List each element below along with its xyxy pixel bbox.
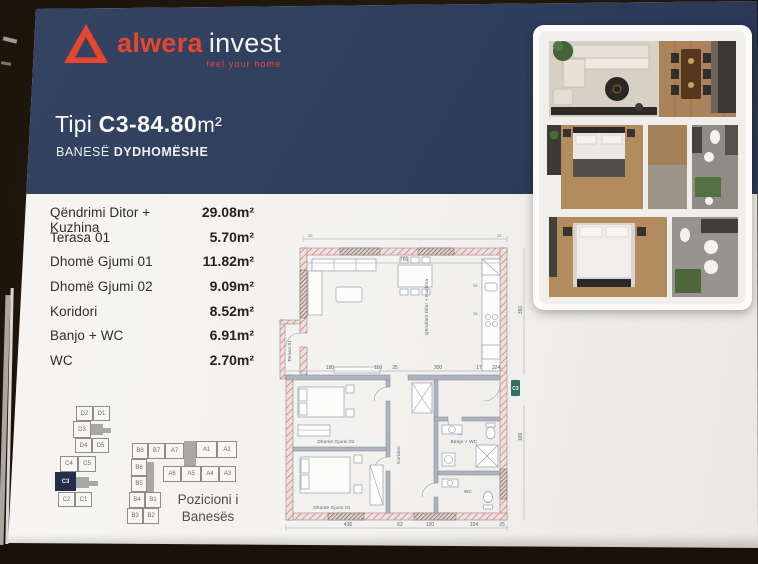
- bath-mat-green: [695, 177, 721, 197]
- position-caption-line1: Pozicioni i: [168, 492, 248, 509]
- wardrobe: [298, 425, 330, 436]
- title-prefix: Tipi: [55, 111, 92, 137]
- elevator-shaft: [76, 477, 89, 488]
- wc-toilet-tank: [484, 505, 493, 509]
- unit-cell: C5: [78, 456, 96, 472]
- dim-corner-right: 25: [497, 233, 502, 238]
- room-area: 11.82m²: [180, 253, 254, 269]
- toilet-3d: [710, 130, 720, 144]
- room-label: Koridori: [50, 304, 180, 319]
- room-row: Qëndrimi Ditor + Kuzhina29.08m²: [50, 204, 254, 229]
- nightstand: [354, 485, 362, 493]
- sink2-3d: [704, 240, 718, 254]
- dim-mid: 180: [326, 365, 335, 371]
- room-row: Banjo + WC6.91m²: [50, 327, 254, 352]
- elevator-shaft: [89, 481, 98, 486]
- room-row: WC2.70m²: [50, 352, 254, 377]
- dim-mid: 324: [492, 365, 501, 371]
- unit-cell: B1: [145, 492, 161, 508]
- unit-cell: D1: [93, 406, 110, 421]
- plan-label-bedroom1: Dhomë Gjumi 01: [313, 505, 351, 510]
- door-entrance: [484, 385, 500, 401]
- unit-cell: B4: [129, 492, 145, 508]
- wall-banjo-top: [434, 417, 448, 421]
- plan-label-corridor: Koridori: [396, 446, 401, 463]
- elevator-shaft: [91, 424, 103, 435]
- washing-machine: [442, 453, 455, 466]
- dim-kitchen: 25: [473, 311, 478, 316]
- title-unit: m²: [197, 114, 222, 137]
- wall-terrace-left: [280, 320, 285, 379]
- chair: [400, 289, 408, 295]
- unit-cell: B5: [131, 476, 147, 492]
- door-bedroom2: [374, 387, 388, 401]
- nightstand: [346, 385, 354, 393]
- page-stack-edge: [3, 36, 18, 43]
- position-caption: Pozicioni i Banesës: [168, 492, 248, 526]
- unit-cell: A5: [181, 466, 201, 482]
- room-area: 29.08m²: [180, 204, 254, 220]
- pillow: [301, 475, 309, 489]
- wall-bath: [434, 380, 438, 483]
- room-label: Terasa 01: [50, 230, 180, 245]
- room-label: Dhomë Gjumi 02: [50, 279, 180, 294]
- unit-cell-highlighted: C3: [55, 472, 76, 491]
- unit-cell: A2: [217, 441, 237, 458]
- wall-bath: [434, 497, 438, 513]
- subtitle-light: BANESË: [56, 145, 110, 159]
- wall-terrace-top: [280, 320, 300, 324]
- brand-tagline: feel your home: [117, 60, 281, 69]
- window: [328, 513, 364, 520]
- page-edge-shadow: [0, 534, 758, 548]
- dim-bottom: 62: [397, 522, 403, 528]
- unit-cell: A4: [201, 466, 219, 482]
- room-label: Banjo + WC: [50, 328, 180, 343]
- door-wc: [422, 483, 436, 497]
- room-area: 8.52m²: [180, 303, 254, 319]
- dim-mid: 110: [374, 365, 382, 371]
- toilet-tank: [486, 423, 495, 427]
- wall-middle: [408, 375, 500, 380]
- wall-bedrooms: [386, 380, 390, 387]
- pillow: [301, 459, 309, 473]
- unit-cell: B6: [131, 459, 147, 476]
- dim-bottom: 104: [470, 522, 479, 528]
- dining-table-3d: [681, 49, 701, 99]
- wall-banjo-wc: [438, 471, 500, 475]
- unit-cell: D4: [75, 438, 92, 453]
- unit-cell: A1: [196, 441, 217, 458]
- armchair-3d: [553, 89, 573, 105]
- unit-cell: D3: [73, 421, 91, 438]
- shower-mat-green: [675, 269, 701, 293]
- dim-bottom: 130: [426, 522, 435, 528]
- chair: [411, 257, 419, 263]
- dim-kitchen: 25: [473, 283, 478, 288]
- wc-toilet: [484, 492, 493, 503]
- wall-top: [303, 248, 507, 255]
- room-row: Dhomë Gjumi 0111.82m²: [50, 253, 254, 278]
- photo-of-brochure: { "brand": { "logo_word_primary": "alwer…: [0, 0, 758, 564]
- nightstand: [346, 409, 354, 417]
- room-label: Dhomë Gjumi 01: [50, 254, 180, 269]
- entry-tile: [648, 165, 687, 209]
- dim-top-width: 766: [400, 257, 409, 263]
- pillow: [299, 403, 307, 415]
- toilet2-3d: [680, 228, 690, 242]
- kitchen-sink: [485, 283, 497, 291]
- dim-mid: 25: [392, 365, 398, 371]
- sofa-chaise: [308, 271, 322, 315]
- dim-mid: 17: [476, 365, 482, 371]
- floorplan-drawing: C3 25 25 766 390 169 25 25 180 110 25 30…: [278, 225, 540, 537]
- window: [300, 270, 307, 318]
- floorplan-3d-render: [533, 25, 752, 310]
- wall-bedrooms: [386, 471, 390, 513]
- plan-label-terrace: Terasa 01: [287, 340, 292, 362]
- unit-cell: B8: [132, 443, 148, 459]
- brand-word-primary: alwera: [117, 28, 203, 58]
- plan-label-wc: WC: [464, 489, 473, 494]
- dim-corner-left: 25: [308, 233, 313, 238]
- pillow: [299, 389, 307, 401]
- room-row: Koridori8.52m²: [50, 303, 254, 328]
- dim-bottom: 25: [499, 522, 505, 528]
- dim-entry-side: 169: [518, 433, 524, 442]
- wall-banjo-top: [462, 417, 500, 421]
- unit-cell: B3: [127, 508, 143, 524]
- unit-cell: C4: [60, 456, 78, 472]
- dim-mid: 300: [434, 365, 443, 371]
- room-label: WC: [50, 353, 180, 368]
- unit-cell: A6: [163, 466, 181, 482]
- unit-cell: B7: [148, 443, 165, 459]
- title-code: C3-84.80: [99, 111, 198, 137]
- sink-3d: [704, 152, 714, 162]
- room-area-list: Qëndrimi Ditor + Kuzhina29.08m² Terasa 0…: [50, 204, 254, 377]
- window: [340, 248, 380, 255]
- chair: [411, 289, 419, 295]
- page-stack-edge: [1, 61, 11, 66]
- chair: [422, 257, 430, 263]
- unit-cell: C2: [58, 492, 75, 507]
- nightstand: [354, 455, 362, 463]
- coffee-table-3d: [605, 77, 629, 101]
- render-illustration: [539, 31, 746, 304]
- sofa-chaise-3d: [563, 59, 585, 87]
- elevator-shaft: [184, 441, 196, 466]
- window: [414, 513, 456, 520]
- wall-between-bedrooms: [293, 447, 386, 451]
- sofa-3d: [573, 45, 649, 58]
- brand-logo: alwerainvest feel your home: [63, 22, 281, 69]
- room-area: 2.70m²: [180, 352, 254, 368]
- hallway-floor: [648, 125, 687, 165]
- room-area: 6.91m²: [180, 327, 254, 343]
- plan-label-bath: Banjo + WC: [451, 439, 478, 444]
- plan-label-bedroom2: Dhomë Gjumi 02: [317, 439, 355, 444]
- page-subtitle: BANESË DYDHOMËSHE: [56, 145, 208, 159]
- unit-cell: D2: [76, 406, 93, 421]
- window: [500, 469, 507, 499]
- unit-cell: D5: [92, 438, 109, 453]
- wall-bedrooms: [386, 401, 390, 457]
- unit-cell: B2: [143, 508, 159, 524]
- unit-cell: A7: [165, 443, 184, 459]
- entrance-unit-label: C3: [512, 386, 519, 392]
- subtitle-bold: DYDHOMËSHE: [114, 145, 209, 159]
- kitchen-cabinet: [482, 345, 500, 359]
- position-caption-line2: Banesës: [168, 509, 248, 526]
- wall-middle: [286, 375, 390, 380]
- wall-left-lower: [286, 375, 293, 520]
- unit-cell: C1: [75, 492, 92, 507]
- brand-wordmark: alwerainvest feel your home: [117, 30, 281, 69]
- room-row: Dhomë Gjumi 029.09m²: [50, 278, 254, 303]
- room-area: 5.70m²: [180, 229, 254, 245]
- brand-word-secondary: invest: [209, 28, 281, 58]
- unit-cell: A3: [219, 466, 236, 482]
- room-area: 9.09m²: [180, 278, 254, 294]
- plan-label-living: Qëndrimi Ditor + Kuzhina: [424, 279, 429, 335]
- page-title: Tipi C3-84.80m²: [55, 111, 222, 138]
- dim-right-height: 390: [518, 306, 524, 315]
- logo-triangle-icon: [63, 22, 109, 66]
- dim-bottom: 436: [344, 522, 353, 528]
- brochure-page: alwerainvest feel your home Tipi C3-84.8…: [0, 0, 758, 564]
- room-row: Terasa 015.70m²: [50, 229, 254, 254]
- sofa: [312, 259, 376, 271]
- elevator-shaft: [103, 428, 111, 433]
- toilet: [486, 427, 495, 439]
- sink3-3d: [704, 260, 718, 274]
- wall-bottom: [286, 513, 507, 520]
- window: [418, 248, 454, 255]
- coffee-table: [336, 287, 362, 302]
